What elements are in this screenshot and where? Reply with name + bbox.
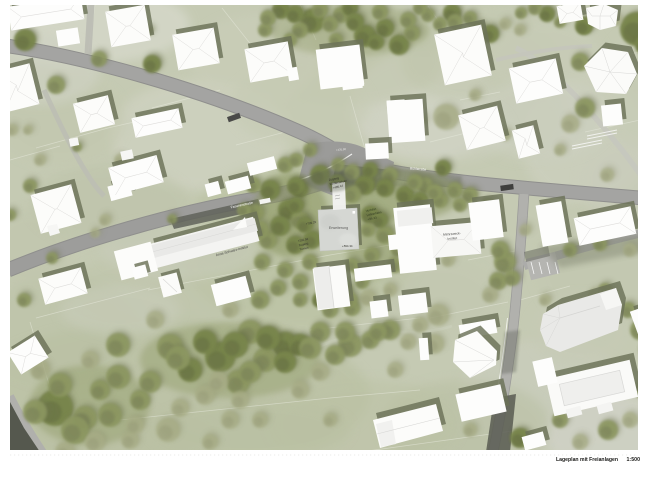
svg-text:Erweiterung: Erweiterung (329, 226, 348, 230)
svg-text:1:500: 1:500 (627, 457, 641, 463)
svg-text:Lageplan mit Freianlagen: Lageplan mit Freianlagen (556, 457, 618, 463)
svg-text:+594.34: +594.34 (342, 244, 353, 248)
svg-text:Institut: Institut (447, 236, 457, 241)
